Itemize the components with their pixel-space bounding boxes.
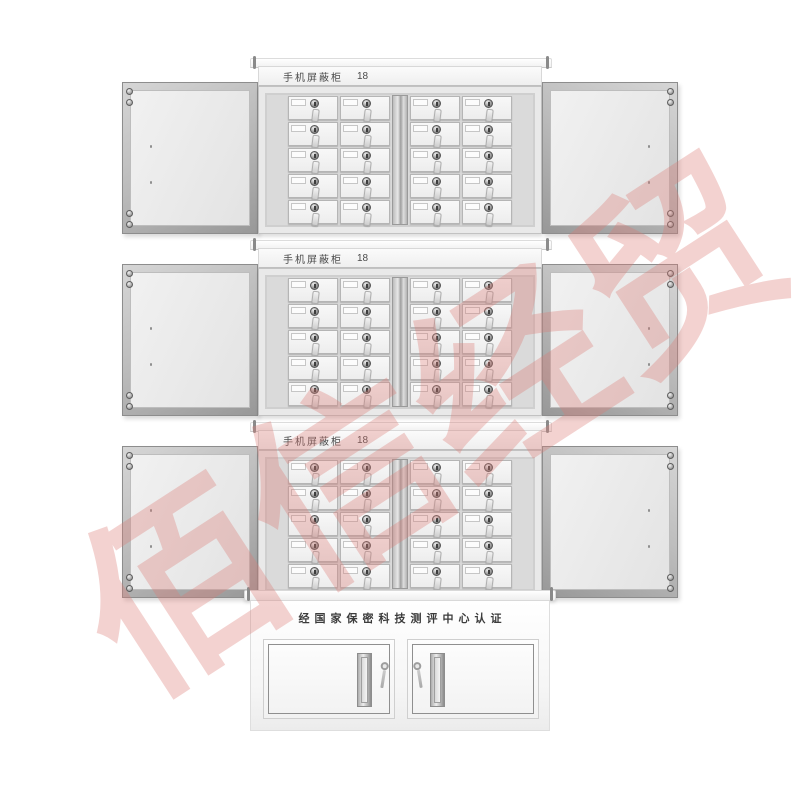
cell-label-sticker [465,385,480,392]
locker-cell [410,174,460,198]
cell-label-sticker [291,541,306,548]
cell-label-sticker [465,125,480,132]
lock-icon [484,333,493,342]
locker-group-right [410,278,512,406]
center-divider [392,95,408,225]
screw-icon [126,281,133,288]
door-handle [357,653,372,707]
lock-icon [362,151,371,160]
locker-cell [288,356,338,380]
locker-cell [288,460,338,484]
unit-center-section: 手机屏蔽柜 18 [258,58,542,240]
key-icon [485,213,494,227]
lock-icon [310,333,319,342]
panel-hole [648,545,650,548]
door-handle [430,653,445,707]
key-icon [485,499,494,513]
cell-label-sticker [343,515,358,522]
cell-label-sticker [413,307,428,314]
locker-cell [410,512,460,536]
locker-cell [340,356,390,380]
unit-header: 手机屏蔽柜 18 [258,66,542,86]
locker-cell [340,122,390,146]
cell-label-sticker [465,541,480,548]
locker-cell [340,174,390,198]
panel-hole [648,327,650,330]
locker-cell [462,486,512,510]
locker-cell [462,122,512,146]
unit-number: 18 [357,71,368,82]
cell-label-sticker [413,567,428,574]
hinge-pin-icon [550,587,553,601]
screw-icon [126,270,133,277]
key-icon [363,317,372,331]
key-icon [485,369,494,383]
key-icon [485,525,494,539]
locker-cell [288,564,338,588]
door-panel [130,454,250,590]
key-icon [433,525,442,539]
cell-label-sticker [291,281,306,288]
locker-cell [340,148,390,172]
lock-icon [310,567,319,576]
locker-cell [288,122,338,146]
locker-cell [410,356,460,380]
lock-icon [310,281,319,290]
locker-cell [462,304,512,328]
lock-icon [432,489,441,498]
locker-cell [288,512,338,536]
lock-icon [484,151,493,160]
open-door-right [542,446,678,598]
locker-cell [288,278,338,302]
hinge-pin-icon [253,238,256,251]
lock-icon [362,281,371,290]
key-icon [363,291,372,305]
key-icon [311,343,320,357]
panel-hole [150,363,152,366]
locker-cell [340,538,390,562]
lock-icon [362,385,371,394]
locker-cell [410,460,460,484]
key-icon [433,395,442,409]
key-icon [363,161,372,175]
cell-label-sticker [343,125,358,132]
lock-icon [484,463,493,472]
cell-label-sticker [465,463,480,470]
locker-cell [462,382,512,406]
cell-label-sticker [413,281,428,288]
panel-hole [648,509,650,512]
key-icon [363,109,372,123]
locker-cell [340,304,390,328]
lock-icon [362,203,371,212]
cell-label-sticker [343,385,358,392]
panel-hole [150,181,152,184]
hinge-pin-icon [546,420,549,433]
locker-cell [410,200,460,224]
locker-cell [410,148,460,172]
key-icon [363,551,372,565]
locker-cell [462,356,512,380]
cell-label-sticker [413,99,428,106]
key-icon [433,473,442,487]
screw-icon [667,452,674,459]
key-icon [311,577,320,591]
lock-icon [484,307,493,316]
screw-icon [667,99,674,106]
center-divider [392,277,408,407]
lock-icon [310,463,319,472]
key-icon [311,161,320,175]
key-icon [485,187,494,201]
key-icon [363,187,372,201]
key-icon [433,577,442,591]
screw-icon [126,221,133,228]
lock-icon [484,489,493,498]
panel-hole [648,145,650,148]
locker-cell [410,486,460,510]
cell-label-sticker [413,333,428,340]
cell-label-sticker [465,177,480,184]
lock-icon [484,203,493,212]
locker-cell [462,174,512,198]
screw-icon [667,210,674,217]
locker-cell [288,96,338,120]
lock-icon [362,125,371,134]
lock-icon [432,385,441,394]
locker-cell [462,564,512,588]
lock-icon [310,541,319,550]
locker-cell [410,122,460,146]
lock-icon [362,541,371,550]
door-panel [130,272,250,408]
locker-cell [410,538,460,562]
cell-label-sticker [413,515,428,522]
key-icon [433,317,442,331]
lock-icon [362,177,371,186]
cell-label-sticker [413,177,428,184]
key-icon [433,109,442,123]
locker-cell [288,304,338,328]
screw-icon [126,452,133,459]
shield-cabinet-unit-2: 手机屏蔽柜 18 [120,240,680,422]
cell-label-sticker [291,359,306,366]
cell-label-sticker [343,333,358,340]
key-icon [485,135,494,149]
lock-icon [484,177,493,186]
door-panel [550,90,670,226]
locker-cell [340,382,390,406]
shield-cabinet-unit-3: 手机屏蔽柜 18 [120,422,680,604]
lock-icon [310,307,319,316]
panel-hole [150,545,152,548]
key-icon [485,551,494,565]
lock-icon [484,515,493,524]
base-cabinet: 经国家保密科技测评中心认证 [250,601,550,731]
lock-icon [310,489,319,498]
screw-icon [126,403,133,410]
shield-cabinet-unit-1: 手机屏蔽柜 18 [120,58,680,240]
key-icon [433,291,442,305]
unit-label: 手机屏蔽柜 [283,433,343,448]
locker-cell [462,330,512,354]
key-icon [433,187,442,201]
hinge-pin-icon [253,420,256,433]
base-door-left [263,639,395,719]
key-icon [311,473,320,487]
lock-icon [432,125,441,134]
unit-center-section: 手机屏蔽柜 18 [258,422,542,604]
locker-group-right [410,460,512,588]
key-icon [363,213,372,227]
base-top-ledge [244,590,556,601]
open-door-right [542,82,678,234]
cell-label-sticker [413,489,428,496]
hinge-pin-icon [546,238,549,251]
key-icon [311,135,320,149]
lock-icon [310,99,319,108]
locker-body [258,268,542,416]
cell-label-sticker [291,463,306,470]
panel-hole [648,363,650,366]
locker-cell [288,486,338,510]
cell-label-sticker [291,385,306,392]
lock-icon [362,567,371,576]
key-icon [433,551,442,565]
cell-label-sticker [465,359,480,366]
unit-center-section: 手机屏蔽柜 18 [258,240,542,422]
cell-label-sticker [413,541,428,548]
locker-group-left [288,278,390,406]
cell-label-sticker [291,177,306,184]
locker-cell [288,148,338,172]
key-icon [363,135,372,149]
cell-label-sticker [343,151,358,158]
locker-cell [410,330,460,354]
screw-icon [126,88,133,95]
locker-cell [288,330,338,354]
lock-icon [362,359,371,368]
locker-cell [410,564,460,588]
door-panel [130,90,250,226]
locker-cell [340,200,390,224]
center-divider [392,459,408,589]
locker-cell [462,538,512,562]
key-icon [363,525,372,539]
locker-cell [288,174,338,198]
cell-label-sticker [291,99,306,106]
lock-icon [432,307,441,316]
lock-icon [432,203,441,212]
cell-label-sticker [465,515,480,522]
key-icon [311,525,320,539]
locker-group-left [288,460,390,588]
key-icon [433,135,442,149]
lock-icon [310,151,319,160]
screw-icon [667,463,674,470]
panel-hole [150,327,152,330]
locker-cell [288,382,338,406]
cell-label-sticker [343,489,358,496]
key-icon [311,187,320,201]
locker-cell [462,96,512,120]
lock-icon [432,281,441,290]
lock-icon [362,333,371,342]
key-icon [311,213,320,227]
cell-label-sticker [343,541,358,548]
screw-icon [667,270,674,277]
screw-icon [667,88,674,95]
lock-icon [362,99,371,108]
open-door-left [122,82,258,234]
lock-icon [432,359,441,368]
locker-cell [340,486,390,510]
unit-number: 18 [357,435,368,446]
locker-cell [340,512,390,536]
key-icon [485,577,494,591]
key-icon [363,577,372,591]
cell-label-sticker [343,463,358,470]
key-icon [311,291,320,305]
screw-icon [667,392,674,399]
locker-body [258,450,542,598]
cell-label-sticker [465,307,480,314]
key-icon [311,551,320,565]
screw-icon [126,99,133,106]
lock-icon [484,125,493,134]
open-door-right [542,264,678,416]
door-panel [550,272,670,408]
cell-label-sticker [413,385,428,392]
panel-hole [150,145,152,148]
screw-icon [126,463,133,470]
key-icon [433,499,442,513]
cell-label-sticker [465,333,480,340]
lock-icon [432,515,441,524]
cell-label-sticker [343,567,358,574]
hinge-pin-icon [546,56,549,69]
unit-label: 手机屏蔽柜 [283,69,343,84]
base-door-right [407,639,539,719]
key-icon [485,161,494,175]
key-icon [433,369,442,383]
lock-icon [432,541,441,550]
lock-icon [484,541,493,550]
locker-cell [410,304,460,328]
key-icon [485,291,494,305]
key-icon [311,499,320,513]
key-icon [433,343,442,357]
key-icon [363,395,372,409]
cell-label-sticker [291,515,306,522]
cell-label-sticker [343,99,358,106]
lock-icon [484,385,493,394]
locker-group-left [288,96,390,224]
door-panel [550,454,670,590]
lock-icon [362,463,371,472]
cell-label-sticker [291,125,306,132]
screw-icon [126,392,133,399]
cell-label-sticker [465,567,480,574]
locker-cell [340,460,390,484]
locker-cell [462,200,512,224]
cell-label-sticker [291,151,306,158]
cell-label-sticker [413,463,428,470]
lock-icon [484,281,493,290]
locker-group-right [410,96,512,224]
key-icon [433,161,442,175]
cell-label-sticker [465,99,480,106]
cell-label-sticker [291,489,306,496]
locker-cell [410,278,460,302]
cell-label-sticker [343,281,358,288]
hinge-pin-icon [247,587,250,601]
lock-icon [432,151,441,160]
screw-icon [667,585,674,592]
cell-label-sticker [291,567,306,574]
open-door-left [122,446,258,598]
key-icon [485,317,494,331]
lock-icon [310,515,319,524]
key-icon [311,109,320,123]
lock-icon [310,177,319,186]
key-icon [363,369,372,383]
locker-cell [410,382,460,406]
hinge-pin-icon [253,56,256,69]
panel-hole [150,509,152,512]
screw-icon [667,574,674,581]
key-icon [363,473,372,487]
lock-icon [362,515,371,524]
lock-icon [432,463,441,472]
key-icon [485,395,494,409]
screw-icon [126,585,133,592]
cell-label-sticker [465,281,480,288]
unit-header: 手机屏蔽柜 18 [258,248,542,268]
cell-label-sticker [413,151,428,158]
locker-cell [340,96,390,120]
key-icon [311,395,320,409]
lock-icon [362,307,371,316]
lock-icon [484,99,493,108]
locker-cell [340,564,390,588]
unit-header: 手机屏蔽柜 18 [258,430,542,450]
locker-cell [462,278,512,302]
key-icon [311,317,320,331]
lock-icon [362,489,371,498]
cell-label-sticker [465,489,480,496]
cell-label-sticker [465,151,480,158]
lock-icon [310,385,319,394]
locker-cell [340,278,390,302]
locker-cell [462,460,512,484]
locker-body [258,86,542,234]
cell-label-sticker [413,125,428,132]
cell-label-sticker [343,307,358,314]
screw-icon [126,210,133,217]
cell-label-sticker [343,203,358,210]
certification-text: 经国家保密科技测评中心认证 [251,610,549,626]
screw-icon [126,574,133,581]
key-icon [433,213,442,227]
lock-icon [310,203,319,212]
cell-label-sticker [465,203,480,210]
cell-label-sticker [413,203,428,210]
key-icon [485,109,494,123]
locker-cell [340,330,390,354]
cell-label-sticker [291,203,306,210]
